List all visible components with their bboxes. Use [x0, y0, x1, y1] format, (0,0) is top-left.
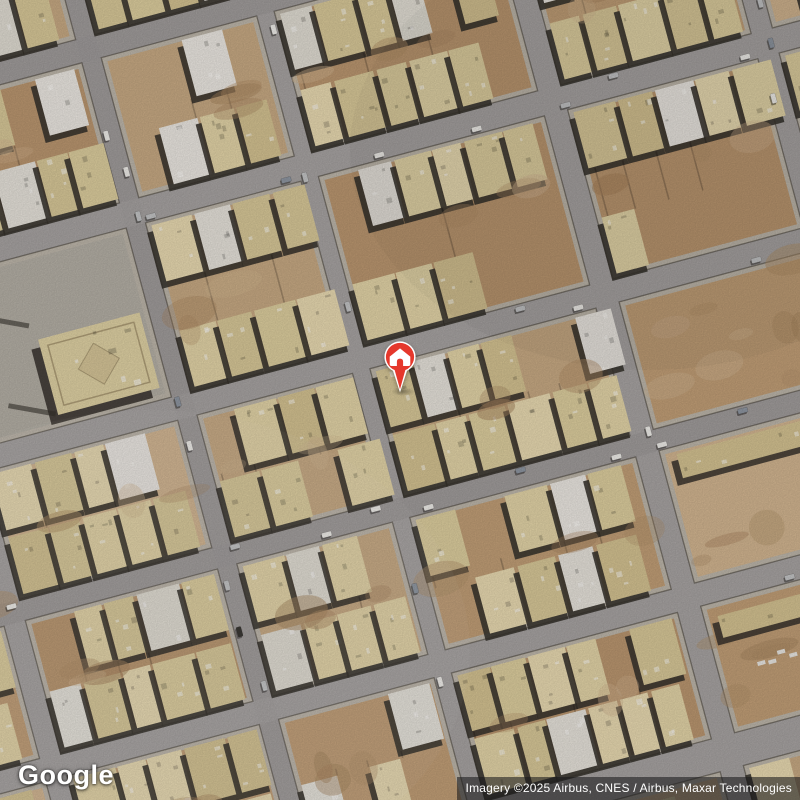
satellite-imagery[interactable]: [0, 0, 800, 800]
map-viewport[interactable]: Google Imagery ©2025 Airbus, CNES / Airb…: [0, 0, 800, 800]
home-icon-door: [397, 359, 403, 366]
location-marker[interactable]: [382, 341, 418, 394]
imagery-attribution: Imagery ©2025 Airbus, CNES / Airbus, Max…: [457, 777, 800, 800]
google-logo[interactable]: Google: [18, 760, 114, 791]
